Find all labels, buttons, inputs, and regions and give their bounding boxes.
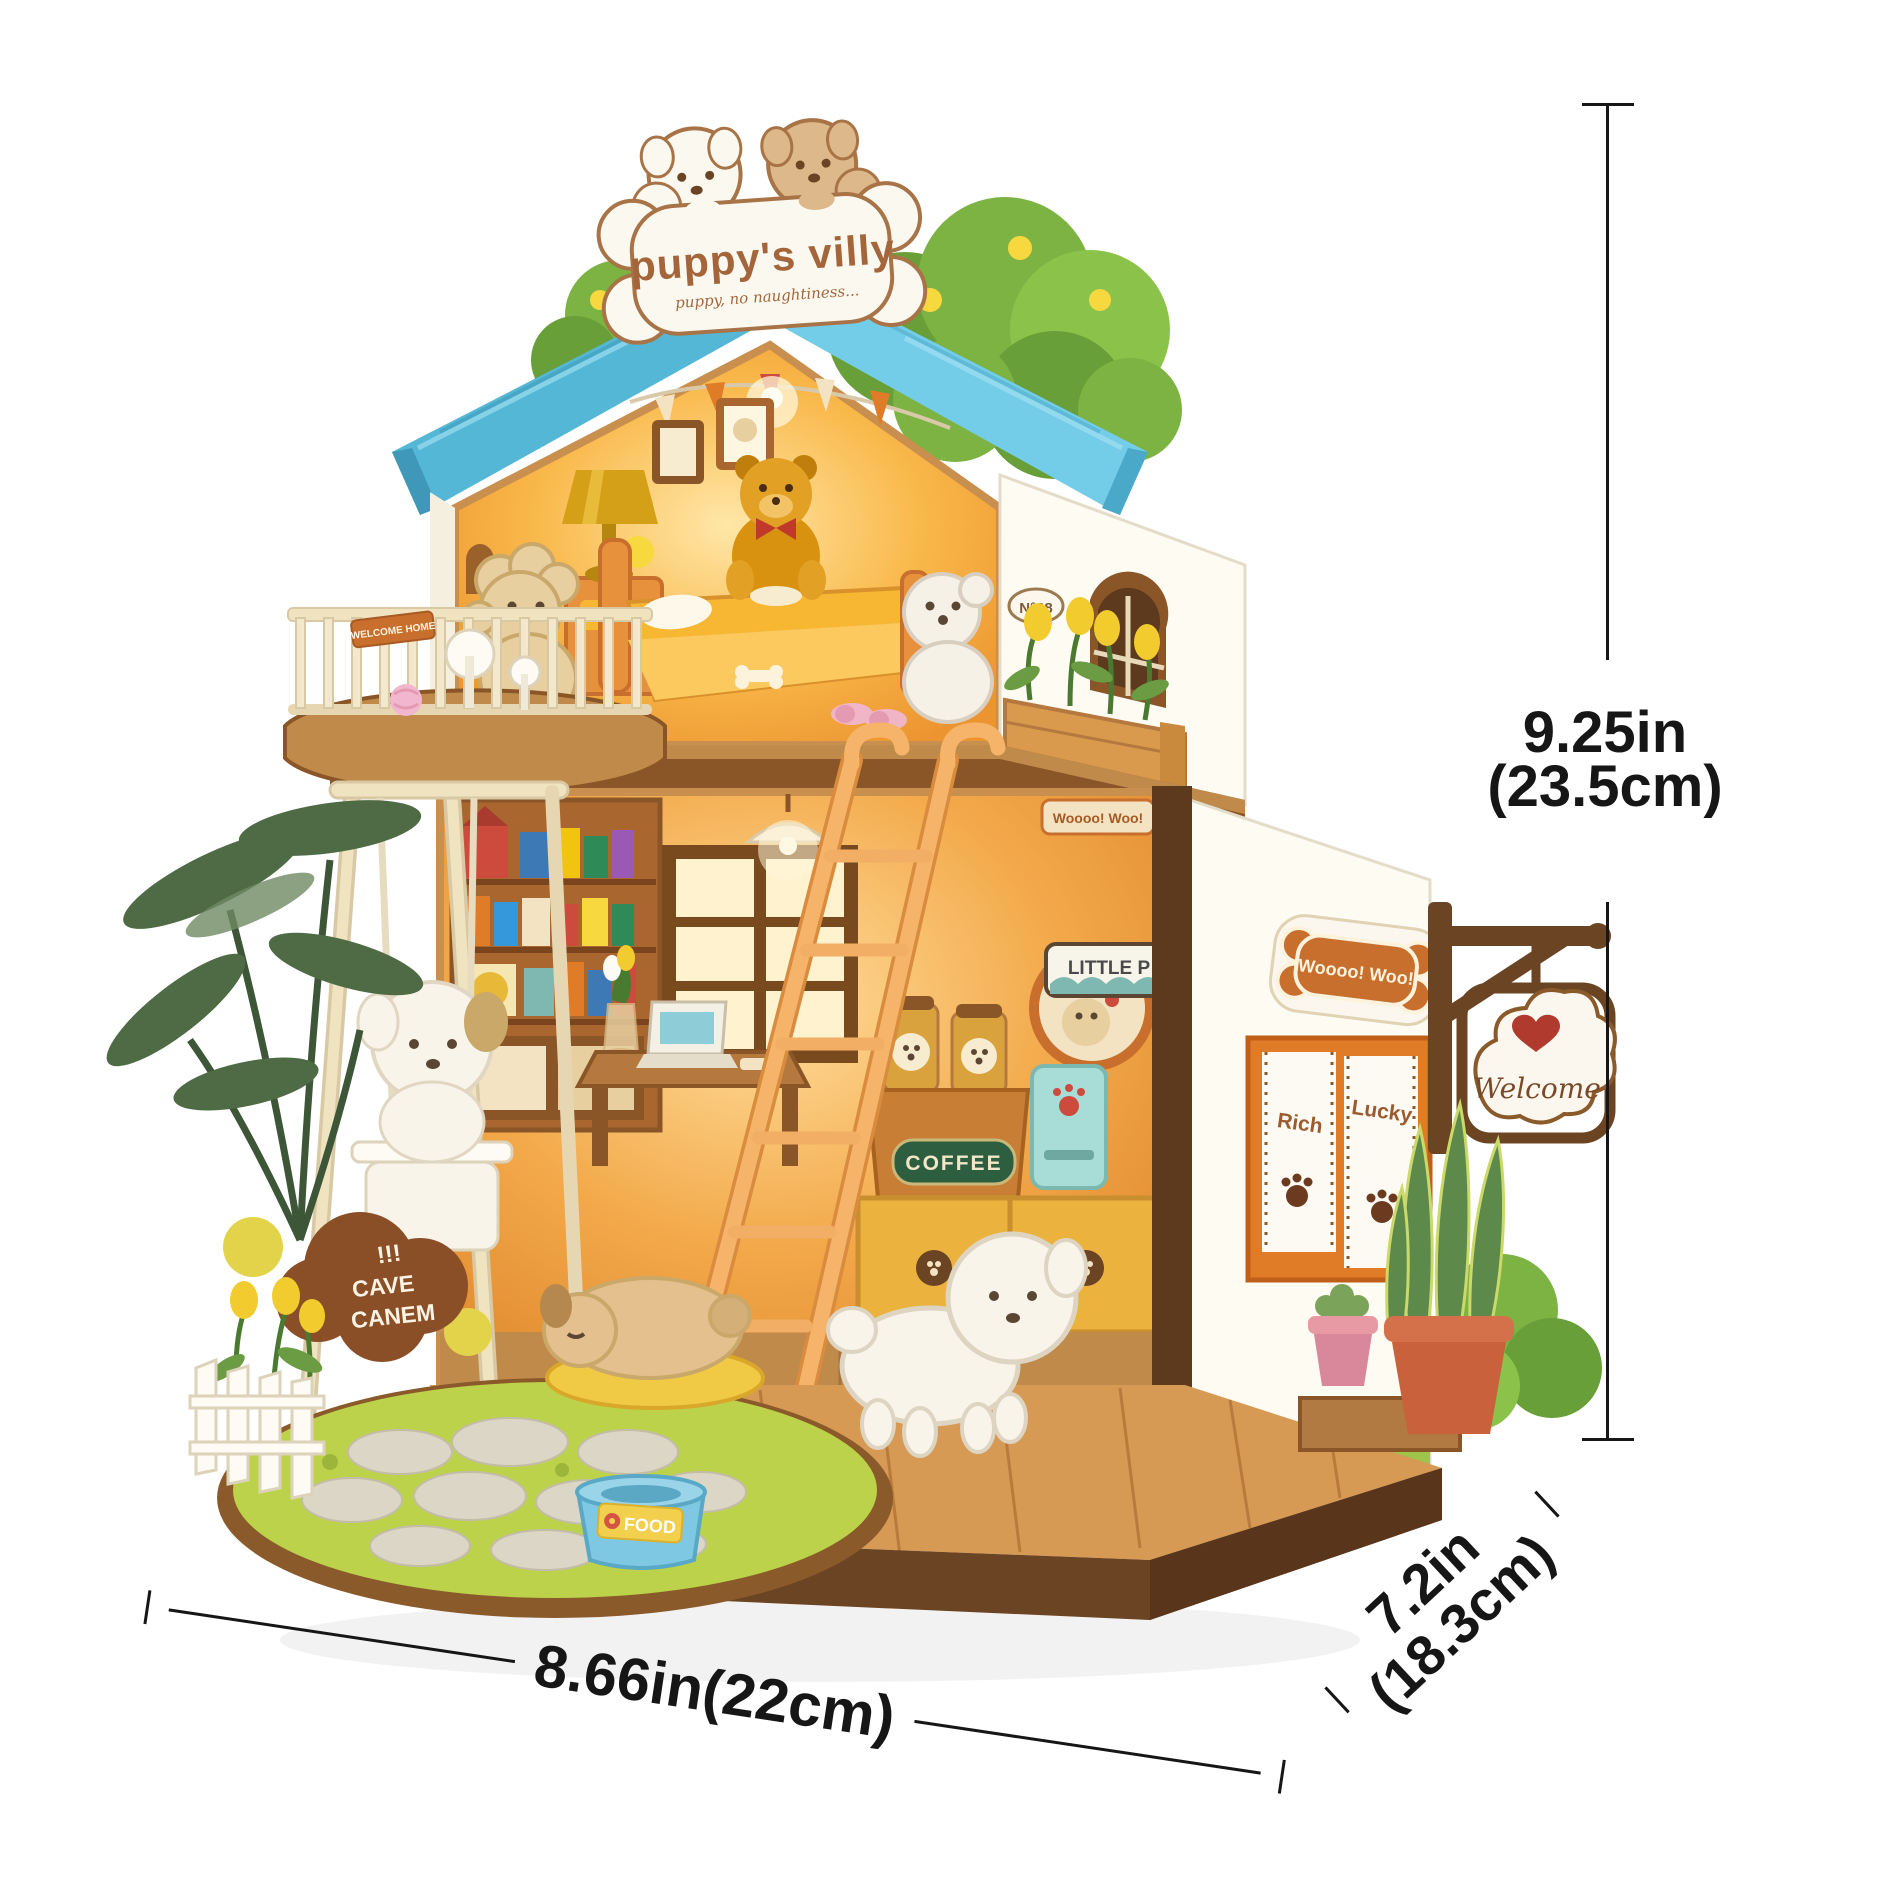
height-dim-line-lower <box>1606 902 1609 1440</box>
balcony: WELCOME HOME <box>285 608 665 794</box>
depth-dim-right-tick <box>1534 1491 1559 1518</box>
welcome-sign-text: Welcome <box>1473 1072 1601 1105</box>
title-sign: puppy's villy puppy, no naughtiness... <box>592 113 928 345</box>
food-bowl: FOOD <box>577 1476 705 1568</box>
height-dim-cm: (23.5cm) <box>1440 760 1770 814</box>
height-dim-inches: 9.25in <box>1440 706 1770 760</box>
sleeping-dog <box>540 1278 763 1408</box>
height-dim-bottom-tick <box>1582 1438 1634 1441</box>
height-dim-label: 9.25in (23.5cm) <box>1440 706 1770 814</box>
interior-woof-banner: Woooo! Woo! <box>1053 810 1143 826</box>
product-dimension-image: N°28 <box>0 0 1892 1886</box>
depth-dim-left-tick <box>1325 1686 1350 1713</box>
beware-sign-marks: !!! <box>375 1240 403 1270</box>
height-dim-line-upper <box>1606 104 1609 660</box>
food-bowl-label: FOOD <box>623 1514 676 1538</box>
teddy-bear <box>726 455 826 606</box>
shop-board-sign: LITTLE P <box>1068 958 1151 979</box>
coffee-crate-sign: COFFEE <box>905 1152 1002 1175</box>
grass-patio <box>217 1378 893 1618</box>
bone-sign: Woooo! Woo! <box>1267 912 1445 1028</box>
